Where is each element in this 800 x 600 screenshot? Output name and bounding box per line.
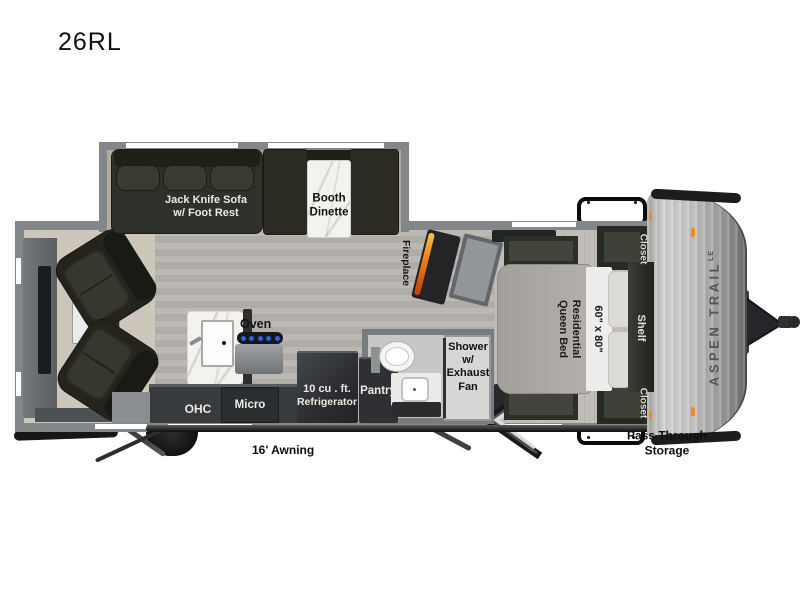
pass-through-line2: Storage: [627, 443, 707, 458]
wall-top-rear-segment: [15, 221, 107, 230]
burner: [258, 336, 263, 341]
pass-through-line1: Pass Through: [627, 429, 707, 444]
nightstand-top: [504, 236, 578, 266]
burner: [241, 336, 246, 341]
marker-light: [691, 407, 695, 416]
end-cabinet: [112, 392, 150, 423]
marker-light: [649, 213, 652, 221]
burner: [266, 336, 271, 341]
vanity-drain: [413, 388, 416, 391]
window-bottom: [95, 424, 147, 429]
shelf-label: Shelf: [635, 315, 647, 342]
sink-drain: [222, 341, 226, 345]
fireplace-label: Fireplace: [400, 240, 412, 286]
floorplan-canvas: 26RL Ja: [0, 0, 800, 600]
cooktop: [237, 332, 283, 344]
shower-label-line3: Exhaust: [446, 367, 490, 380]
slideout-wall-left: [99, 142, 107, 232]
sofa-cushion: [210, 165, 254, 191]
window-bedroom-top: [512, 222, 576, 227]
closet-panel: [604, 232, 640, 262]
sofa-label-line2: w/ Foot Rest: [165, 207, 247, 220]
nightstand-panel: [509, 393, 573, 415]
refrigerator-label-line2: Refrigerator: [297, 396, 357, 409]
awning-bar: [146, 425, 654, 432]
closet-top-label: Closet: [638, 234, 649, 265]
bed-label-line2: Queen Bed: [556, 300, 569, 359]
hitch-a-frame: [740, 288, 800, 356]
brand-logo: ASPEN TRAILLE: [707, 250, 722, 386]
toilet-bowl-inner: [385, 347, 409, 366]
bed-label-line1: Residential: [569, 300, 582, 359]
tv: [38, 266, 51, 374]
nightstand-panel: [509, 241, 573, 261]
brand-logo-text: ASPEN TRAIL: [707, 261, 722, 386]
refrigerator-label: 10 cu . ft. Refrigerator: [297, 383, 357, 409]
vanity-base: [392, 402, 441, 417]
sofa-cushion: [116, 165, 160, 191]
bed-size-label: 60" x 80": [592, 305, 604, 352]
dinette-label-line1: Booth: [310, 193, 349, 207]
window-rear-wall: [16, 372, 21, 396]
oven-body: [235, 344, 283, 374]
shower-label-line4: Fan: [446, 381, 490, 394]
oven-label: Oven: [240, 317, 271, 331]
sofa-cushion: [163, 165, 207, 191]
front-cap: [647, 191, 747, 443]
floorplan-title: 26RL: [58, 28, 122, 57]
sofa-label-line1: Jack Knife Sofa: [165, 194, 247, 207]
marker-light: [649, 411, 652, 419]
pass-through-rivet: [587, 436, 590, 439]
refrigerator-label-line1: 10 cu . ft.: [297, 383, 357, 396]
closet-panel: [604, 388, 640, 418]
bed-label: Residential Queen Bed: [556, 300, 582, 359]
closet-bottom-label: Closet: [638, 388, 649, 419]
slideout-wall-right: [401, 142, 409, 232]
brand-logo-badge: LE: [708, 250, 715, 261]
slideout-window: [268, 143, 384, 148]
sofa-label: Jack Knife Sofa w/ Foot Rest: [165, 194, 247, 220]
kitchen-sink: [201, 320, 234, 367]
grab-handle-rivet: [634, 201, 637, 204]
pantry-label: Pantry: [360, 385, 396, 397]
awning-label: 16' Awning: [252, 443, 314, 457]
toilet: [379, 341, 415, 372]
shower-label: Shower w/ Exhaust Fan: [446, 341, 490, 394]
burner: [275, 336, 280, 341]
dinette-label: Booth Dinette: [310, 193, 349, 220]
pass-through-label: Pass Through Storage: [627, 429, 707, 458]
microwave-label: Micro: [235, 399, 266, 411]
dinette-bench-right: [349, 149, 399, 235]
burner: [249, 336, 254, 341]
dinette-label-line2: Dinette: [310, 206, 349, 220]
ohc-label: OHC: [185, 402, 212, 416]
window-rear-wall: [16, 258, 21, 284]
shower-label-line2: w/: [446, 354, 490, 367]
shower-label-line1: Shower: [446, 341, 490, 354]
dinette-bench-left: [263, 149, 308, 235]
slideout-window: [126, 143, 238, 148]
marker-light: [691, 228, 695, 237]
grab-handle-rivet: [587, 201, 590, 204]
